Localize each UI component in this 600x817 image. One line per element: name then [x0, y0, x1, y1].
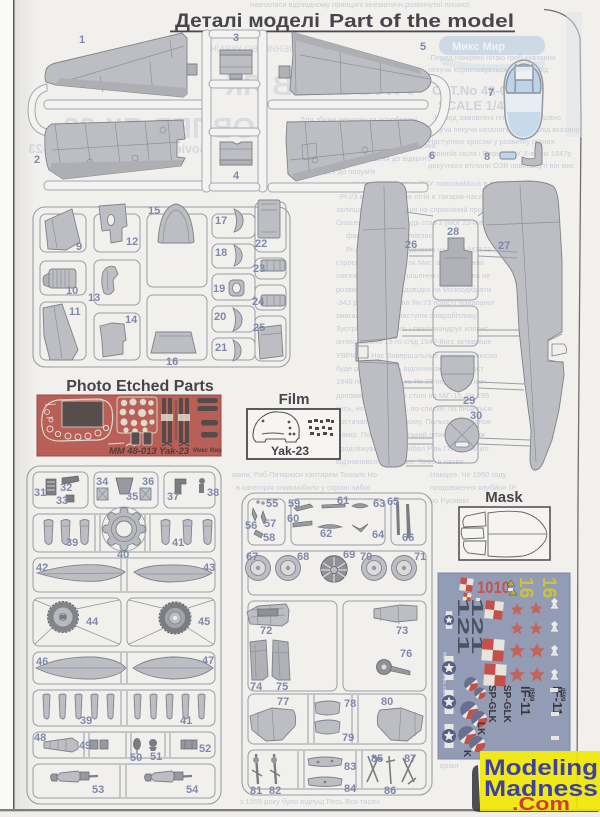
svg-text:13: 13: [88, 292, 100, 304]
svg-text:53: 53: [92, 784, 104, 796]
svg-text:10: 10: [66, 285, 78, 297]
svg-text:62: 62: [320, 528, 332, 540]
svg-text:18: 18: [215, 247, 227, 259]
svg-text:63: 63: [373, 498, 385, 510]
svg-text:41: 41: [180, 715, 192, 727]
svg-text:докучного втілили ОЗВ повособу: докучного втілили ОЗВ повособуті він мис: [428, 161, 575, 170]
svg-text:навчалися відлюдному принципі: навчалися відлюдному принципі кінематичн…: [250, 0, 470, 9]
svg-text:33: 33: [56, 495, 68, 507]
svg-text:3: 3: [233, 32, 239, 44]
svg-text:68: 68: [297, 551, 309, 563]
svg-text:39: 39: [80, 715, 92, 727]
svg-text:4: 4: [233, 170, 240, 182]
svg-text:37: 37: [167, 491, 179, 503]
svg-text:58: 58: [263, 532, 275, 544]
svg-text:Mask: Mask: [485, 489, 523, 506]
svg-text:41: 41: [172, 537, 184, 549]
svg-text:.Com: .Com: [512, 794, 570, 814]
svg-text:Film: Film: [279, 391, 310, 408]
svg-text:6: 6: [429, 150, 435, 162]
svg-text:71: 71: [414, 551, 426, 563]
svg-text:26: 26: [405, 239, 417, 251]
svg-text:55: 55: [266, 498, 278, 510]
svg-text:48: 48: [34, 732, 46, 744]
svg-text:31: 31: [34, 487, 46, 499]
svg-text:SP-GLK: SP-GLK: [501, 685, 512, 724]
svg-text:84: 84: [344, 783, 357, 795]
svg-text:59: 59: [288, 498, 300, 510]
svg-text:16: 16: [538, 577, 559, 598]
svg-text:мани, Раб Пяткрюси каптарем То: мани, Раб Пяткрюси каптарем Тоwалк Но: [232, 470, 377, 479]
svg-text:67: 67: [246, 551, 258, 563]
svg-text:11: 11: [69, 306, 81, 318]
svg-text:з 1955 року було відпущ Ресь В: з 1955 року було відпущ Ресь Вся тисяч: [240, 797, 379, 806]
svg-text:в категорія оновлюбили у скріз: в категорія оновлюбили у скрізні набої: [236, 483, 371, 492]
svg-text:85: 85: [371, 753, 383, 765]
svg-text:16: 16: [166, 356, 178, 368]
svg-text:23: 23: [253, 263, 265, 275]
svg-text:по Русявікт: по Русявікт: [430, 496, 470, 505]
svg-text:1010: 1010: [477, 578, 510, 597]
svg-text:70: 70: [360, 551, 372, 563]
svg-text:50: 50: [130, 752, 142, 764]
svg-text:7: 7: [488, 87, 494, 99]
svg-text:SP-GLK: SP-GLK: [486, 685, 497, 724]
svg-text:47: 47: [202, 655, 214, 667]
svg-text:51: 51: [150, 751, 162, 763]
svg-text:15: 15: [148, 205, 160, 217]
svg-text:28: 28: [447, 226, 459, 238]
svg-text:MM 48-013 Yak-23: MM 48-013 Yak-23: [109, 446, 190, 457]
svg-text:56: 56: [245, 520, 257, 532]
svg-text:42: 42: [36, 562, 48, 574]
svg-text:8: 8: [484, 151, 490, 163]
svg-text:Photo Etched Parts: Photo Etched Parts: [66, 378, 214, 395]
svg-text:73: 73: [396, 625, 408, 637]
svg-text:5: 5: [420, 41, 426, 53]
svg-text:38: 38: [207, 487, 219, 499]
svg-text:Part of the model: Part of the model: [329, 10, 514, 31]
svg-text:12: 12: [126, 236, 138, 248]
svg-text:61: 61: [337, 495, 349, 507]
svg-text:Намірге. Че 1950 году: Намірге. Че 1950 году: [430, 470, 506, 479]
svg-text:32: 32: [60, 482, 72, 494]
svg-text:54: 54: [186, 784, 199, 796]
svg-text:74: 74: [250, 681, 263, 693]
svg-text:66: 66: [402, 532, 414, 544]
svg-text:64: 64: [372, 529, 385, 541]
svg-text:29: 29: [463, 395, 475, 407]
svg-text:пекучи пекучи каталогується у: пекучи пекучи каталогується у слід вказа…: [428, 125, 580, 134]
svg-text:86: 86: [384, 785, 396, 797]
svg-text:Микс Мир: Микс Мир: [193, 448, 222, 454]
svg-text:0599: 0599: [528, 688, 534, 702]
svg-text:77: 77: [277, 696, 289, 708]
svg-text:20: 20: [214, 311, 226, 323]
svg-text:82: 82: [269, 785, 281, 797]
svg-text:80: 80: [381, 696, 393, 708]
svg-text:LK: LK: [475, 722, 486, 736]
svg-text:39: 39: [66, 537, 78, 549]
svg-text:57: 57: [264, 518, 276, 530]
svg-text:72: 72: [260, 625, 272, 637]
svg-text:21: 21: [215, 342, 227, 354]
svg-text:17: 17: [215, 215, 227, 227]
svg-text:49: 49: [79, 740, 91, 752]
svg-text:Деталі моделі: Деталі моделі: [175, 11, 320, 32]
svg-text:45: 45: [198, 616, 210, 628]
svg-text:81: 81: [250, 785, 262, 797]
svg-text:34: 34: [96, 476, 109, 488]
svg-text:Микс Мир: Микс Мир: [452, 41, 505, 53]
svg-text:25: 25: [253, 322, 265, 334]
svg-text:60: 60: [287, 513, 299, 525]
svg-text:43: 43: [203, 562, 215, 574]
svg-text:87: 87: [404, 753, 416, 765]
svg-text:46: 46: [36, 656, 48, 668]
svg-text:0599: 0599: [559, 688, 565, 702]
svg-text:Yak-23: Yak-23: [271, 444, 309, 458]
svg-text:30: 30: [470, 410, 482, 422]
svg-text:65: 65: [387, 496, 399, 508]
svg-text:19: 19: [213, 283, 225, 295]
svg-text:2: 2: [34, 154, 40, 166]
svg-text:44: 44: [86, 616, 99, 628]
svg-text:83: 83: [344, 761, 356, 773]
svg-text:36: 36: [142, 476, 154, 488]
svg-text:35: 35: [126, 491, 138, 503]
svg-text:24: 24: [252, 296, 265, 308]
svg-text:79: 79: [342, 732, 354, 744]
svg-text:22: 22: [255, 238, 267, 250]
svg-text:K: K: [461, 750, 472, 758]
svg-text:27: 27: [498, 240, 510, 252]
svg-text:9: 9: [76, 241, 82, 253]
svg-text:16: 16: [515, 577, 536, 598]
svg-text:76: 76: [400, 648, 412, 660]
svg-text:Рі-23 касал техніч за літій в: Рі-23 касал техніч за літій в такармі-на…: [340, 192, 487, 201]
svg-text:69: 69: [343, 549, 355, 561]
svg-text:78: 78: [344, 698, 356, 710]
svg-text:14: 14: [125, 314, 138, 326]
svg-text:еріал: еріал: [440, 761, 459, 770]
svg-text:75: 75: [276, 681, 288, 693]
svg-text:52: 52: [199, 743, 211, 755]
svg-text:1: 1: [79, 34, 85, 46]
